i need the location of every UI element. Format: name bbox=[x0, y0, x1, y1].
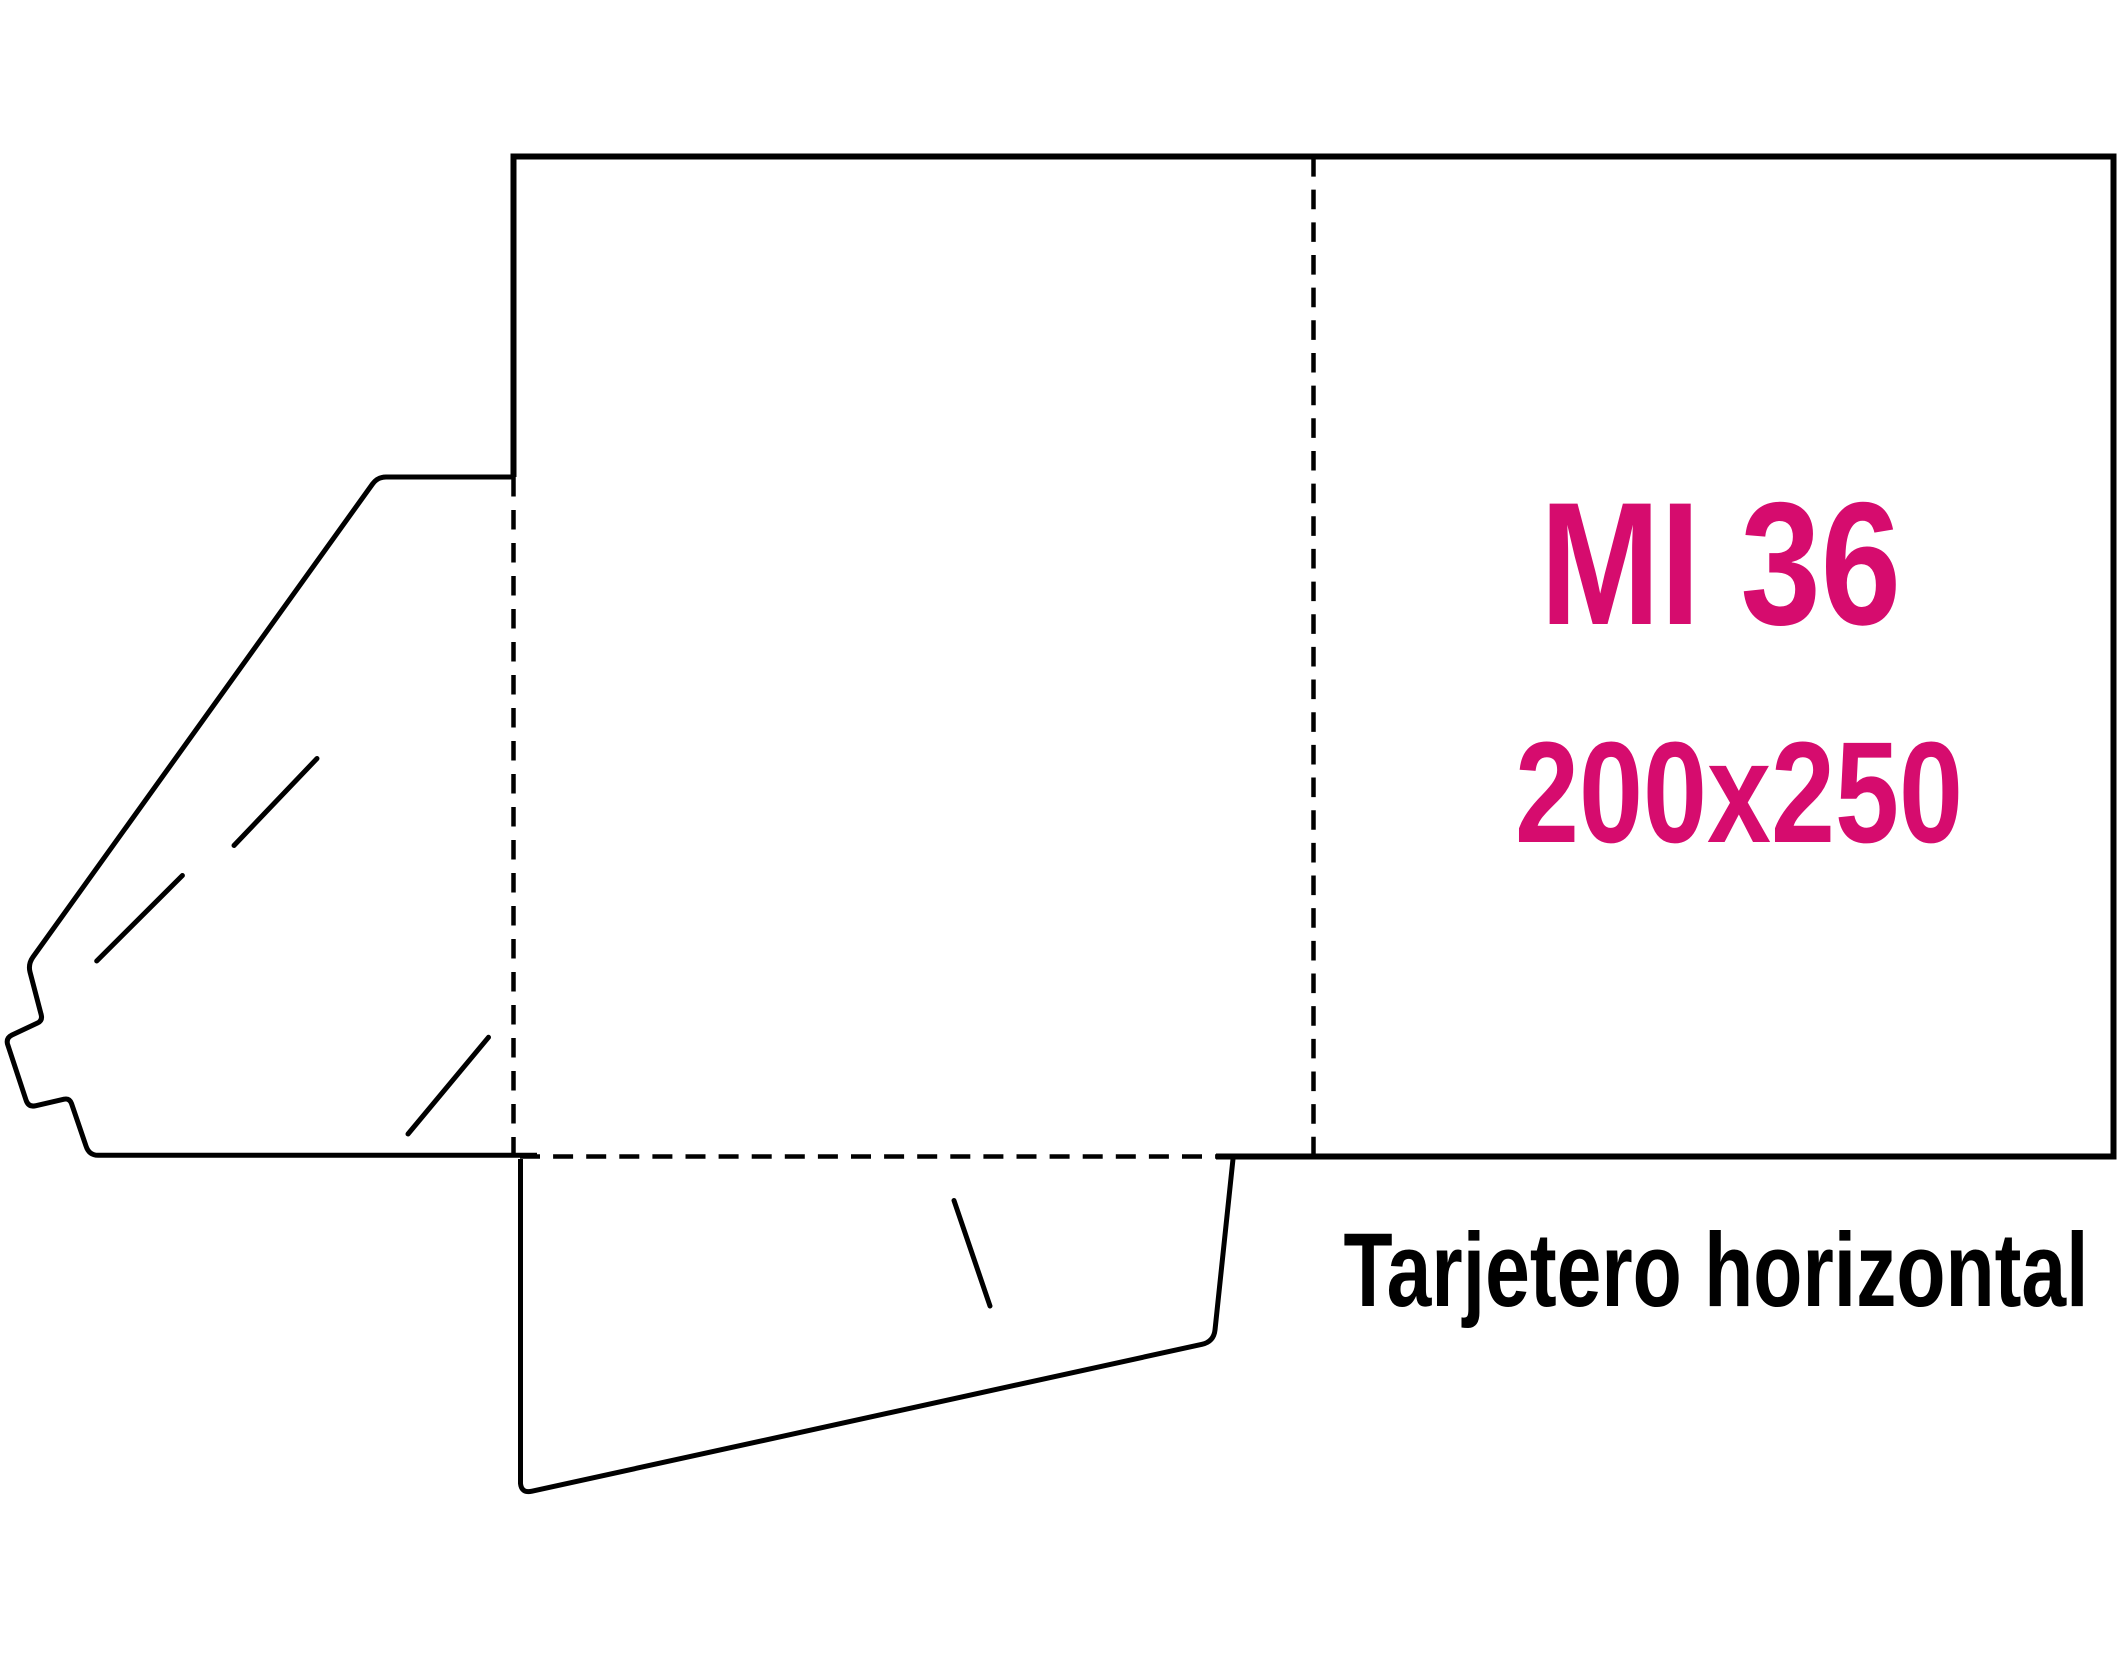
svg-text:200x250: 200x250 bbox=[1515, 712, 1963, 873]
svg-text:MI 36: MI 36 bbox=[1540, 467, 1901, 662]
svg-text:Tarjetero horizontal: Tarjetero horizontal bbox=[1344, 1212, 2089, 1329]
